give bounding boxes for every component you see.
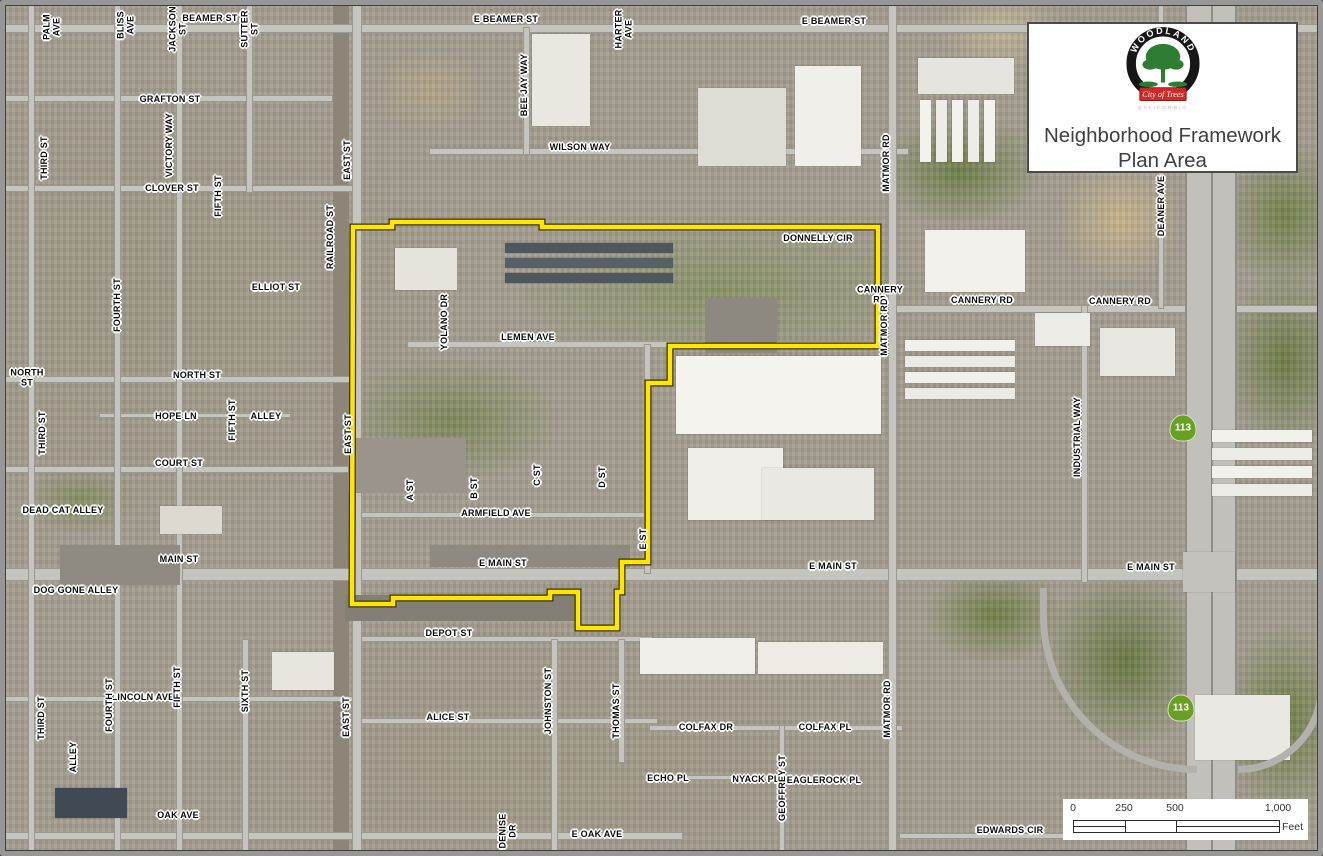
scale-segment (1176, 821, 1279, 832)
map-sheet: PALM AVEBLISS AVEJACKSON STBEAMER STSUTT… (0, 0, 1323, 856)
scale-tick-label: 500 (1166, 802, 1184, 814)
highway-113-shield: 113 (1170, 415, 1197, 442)
map-title-line1: Neighborhood Framework (1029, 124, 1296, 149)
scale-bar: 02505001,000 Feet (1063, 799, 1308, 840)
scale-segment (1125, 821, 1176, 832)
scale-tick-label: 0 (1070, 802, 1076, 814)
logo-banner-text: City of Trees (1142, 90, 1183, 99)
scale-bar-graphic (1073, 820, 1280, 833)
scale-tick-label: 250 (1115, 802, 1133, 814)
scale-unit: Feet (1282, 821, 1303, 833)
scale-tick-label: 1,000 (1265, 802, 1291, 814)
logo-california-text: CALIFORNIA (1138, 105, 1188, 111)
woodland-city-logo: WOODLAND City of Trees CALIFORNIA (1120, 24, 1206, 117)
map-title: Neighborhood Framework Plan Area (1029, 124, 1296, 173)
highway-113-shield: 113 (1168, 695, 1195, 722)
scale-segment (1074, 821, 1125, 832)
map-title-line2: Plan Area (1029, 149, 1296, 174)
title-box: WOODLAND City of Trees CALIFORNIA Neighb… (1027, 22, 1298, 173)
